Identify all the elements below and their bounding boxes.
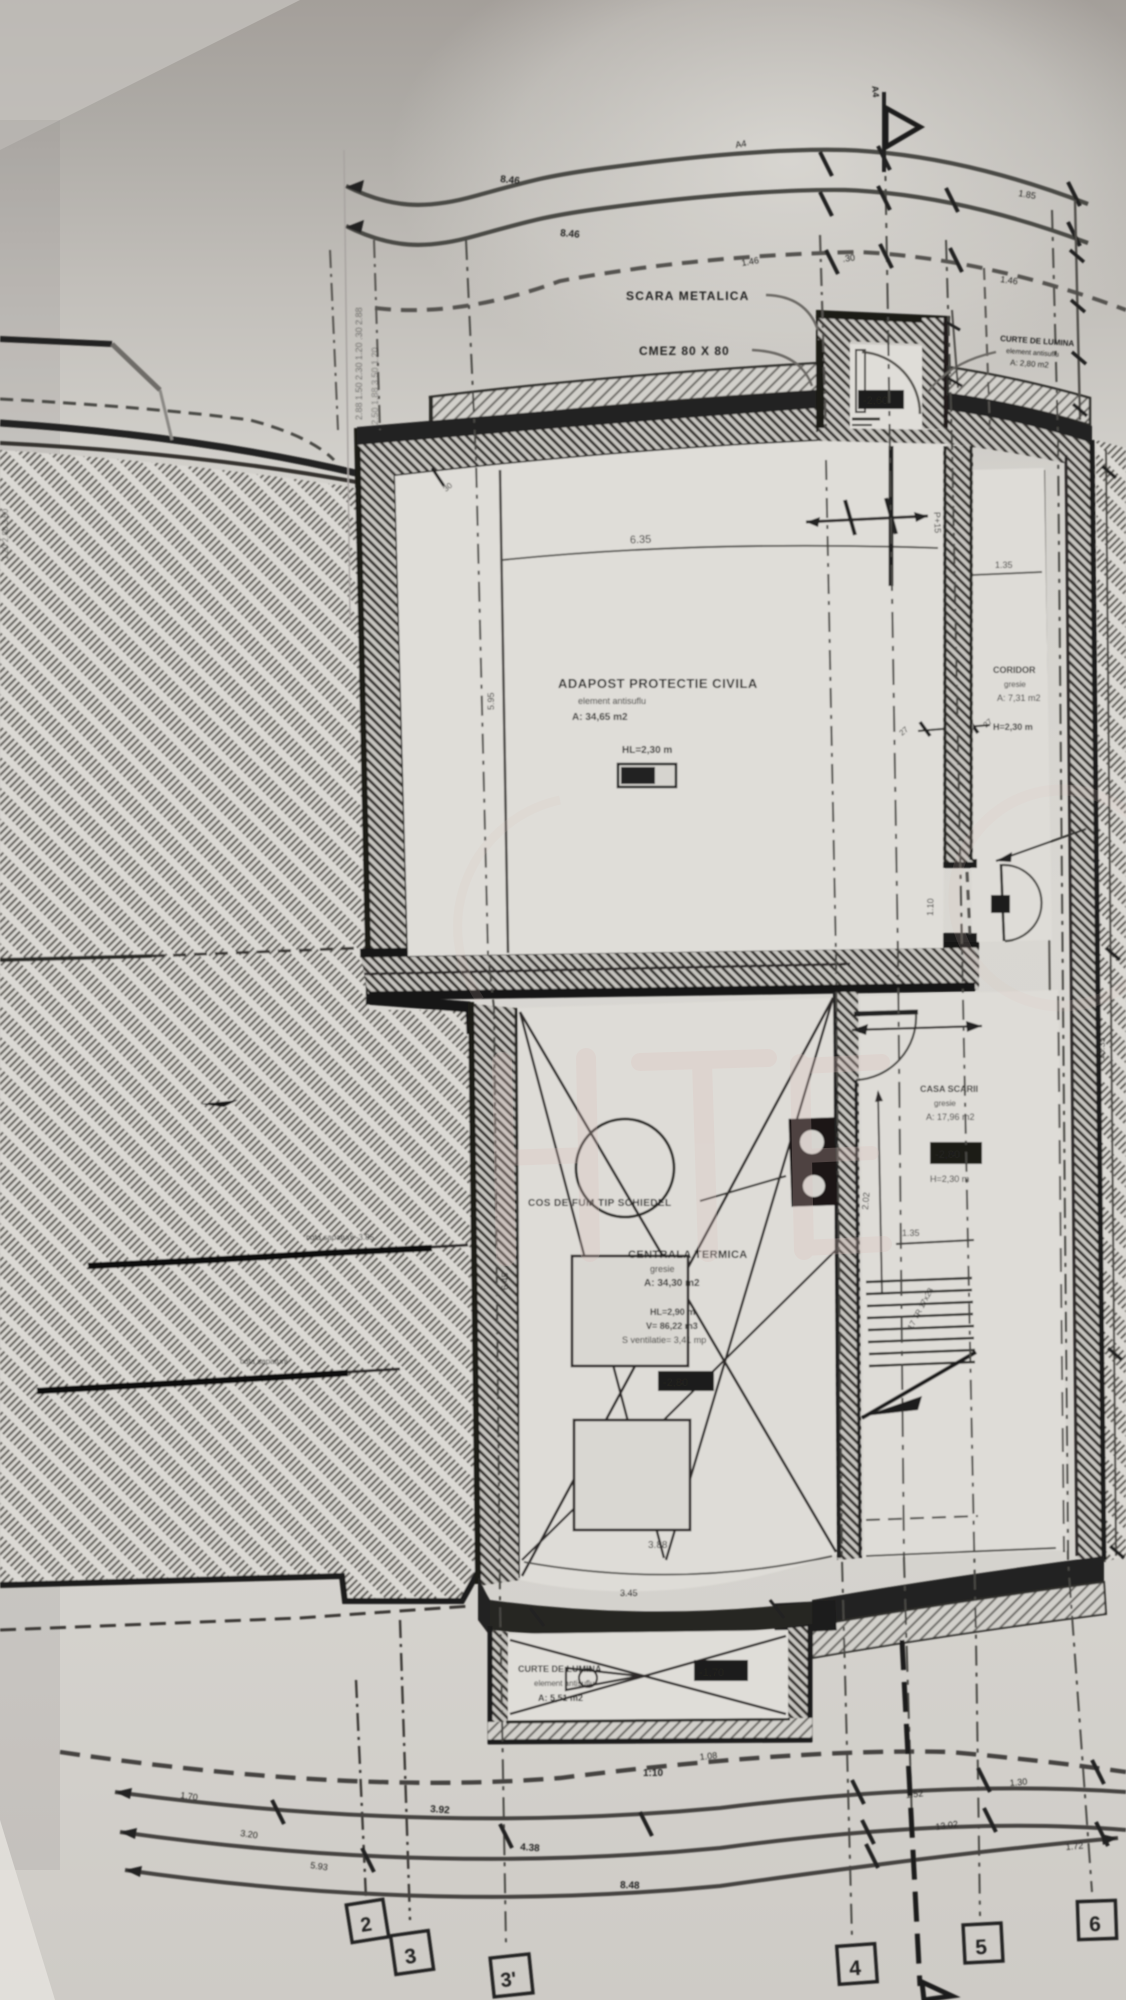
svg-text:CASA SCARII: CASA SCARII: [920, 1084, 978, 1094]
svg-text:gresie: gresie: [934, 1099, 956, 1108]
svg-text:HL=2,90 m: HL=2,90 m: [650, 1307, 695, 1317]
svg-text:-2,60: -2,60: [863, 395, 888, 407]
svg-text:1.10: 1.10: [925, 898, 936, 916]
svg-text:A: 17,96 m2: A: 17,96 m2: [926, 1112, 975, 1122]
svg-text:S ventilatie= 3,41 mp: S ventilatie= 3,41 mp: [622, 1335, 706, 1345]
svg-text:element antisuflu: element antisuflu: [578, 696, 646, 706]
svg-text:1.20 2.88 3.50: 1.20 2.88 3.50: [1, 508, 10, 560]
svg-text:6.45: 6.45: [500, 1272, 510, 1290]
svg-text:8.46: 8.46: [500, 174, 521, 187]
svg-text:H=2,30 m: H=2,30 m: [930, 1174, 969, 1184]
svg-text:1.72: 1.72: [1065, 1841, 1083, 1852]
svg-text:.30: .30: [842, 252, 856, 264]
svg-text:2.88 1.50 2.30 1.20 .30 2: 2.88 1.50 2.30 1.20 .30 2.88: [354, 307, 364, 420]
svg-text:A: 34,30 m2: A: 34,30 m2: [644, 1278, 700, 1289]
svg-text:HL=2,30 m: HL=2,30 m: [622, 745, 672, 756]
svg-text:CORIDOR: CORIDOR: [993, 665, 1036, 675]
svg-text:P+15: P+15: [932, 512, 943, 534]
svg-text:H=2,30 m: H=2,30 m: [993, 722, 1033, 732]
svg-text:2.02: 2.02: [860, 1192, 871, 1210]
svg-text:A4: A4: [870, 85, 881, 97]
svg-text:.30 2.50 1.88 3.50 1.20: .30 2.50 1.88 3.50 1.20: [370, 347, 380, 440]
svg-text:3.45: 3.45: [620, 1588, 638, 1598]
svg-text:4: 4: [849, 1957, 863, 1981]
svg-text:element antisuflu: element antisuflu: [534, 1679, 594, 1688]
svg-text:1.35: 1.35: [902, 1228, 920, 1238]
svg-text:13.35: 13.35: [1096, 1037, 1107, 1060]
svg-text:8.46: 8.46: [560, 228, 581, 241]
svg-text:1.30: 1.30: [1009, 1777, 1027, 1788]
svg-text:SCARA METALICA: SCARA METALICA: [626, 289, 749, 303]
svg-text:-2,80: -2,80: [663, 1377, 688, 1389]
svg-text:CURTE DE LUMINA: CURTE DE LUMINA: [518, 1664, 602, 1674]
svg-text:3.88: 3.88: [648, 1540, 668, 1551]
svg-text:A: 7,31 m2: A: 7,31 m2: [997, 693, 1041, 703]
svg-text:1.08: 1.08: [699, 1750, 717, 1762]
svg-text:A: 34,65 m2: A: 34,65 m2: [572, 712, 628, 723]
svg-text:A: 5,51 m2: A: 5,51 m2: [538, 1693, 583, 1703]
svg-text:3': 3': [499, 1969, 517, 1993]
svg-text:1.35: 1.35: [995, 560, 1013, 570]
svg-text:CMEZ 80 X 80: CMEZ 80 X 80: [639, 344, 730, 358]
svg-text:5.95: 5.95: [486, 692, 496, 710]
svg-text:3.92: 3.92: [430, 1804, 451, 1816]
svg-text:A4: A4: [735, 138, 748, 150]
svg-text:ADAPOST PROTECTIE CIVILA: ADAPOST PROTECTIE CIVILA: [558, 676, 758, 691]
svg-text:V= 86,22 m3: V= 86,22 m3: [646, 1321, 698, 1331]
svg-text:-2,80: -2,80: [935, 1149, 960, 1161]
svg-text:-2,6: -2,6: [624, 771, 643, 783]
svg-text:8.48: 8.48: [620, 1880, 640, 1892]
svg-text:4.38: 4.38: [520, 1842, 541, 1854]
svg-text:cota sapaturii: cota sapaturii: [240, 1357, 288, 1366]
svg-text:6.35: 6.35: [630, 534, 652, 547]
svg-text:gresie: gresie: [650, 1264, 675, 1274]
svg-text:cota sapaturii -3.85: cota sapaturii -3.85: [306, 1233, 375, 1242]
svg-text:-1,70: -1,70: [699, 1667, 724, 1679]
svg-text:1:10: 1:10: [643, 1768, 663, 1779]
svg-text:gresie: gresie: [1004, 680, 1026, 689]
svg-text:COS DE FUM TIP SCHIEDEL: COS DE FUM TIP SCHIEDEL: [528, 1198, 671, 1209]
svg-text:CENTRALA TERMICA: CENTRALA TERMICA: [628, 1249, 748, 1261]
svg-text:5: 5: [975, 1936, 988, 1960]
svg-text:6: 6: [1089, 1913, 1101, 1936]
